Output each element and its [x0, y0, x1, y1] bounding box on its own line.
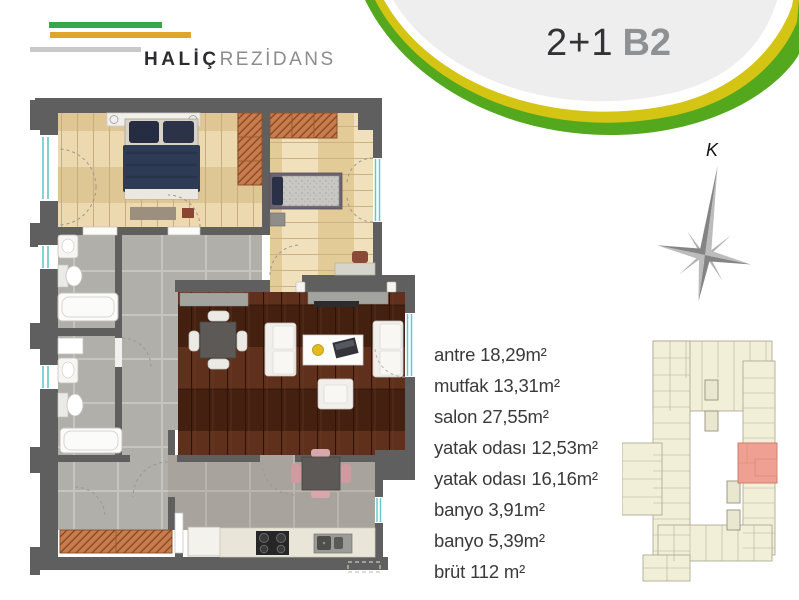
- sink-2: [58, 358, 78, 383]
- list-item: mutfak13,31m²: [434, 375, 598, 406]
- room-name: antre: [434, 344, 475, 365]
- compass-rose-icon: [648, 150, 768, 310]
- unit-block-label: B2: [622, 22, 671, 64]
- list-item: salon27,55m²: [434, 406, 598, 437]
- desk-chair: [352, 251, 368, 263]
- room-name: brüt: [434, 561, 465, 582]
- bathtub-2: [60, 428, 122, 453]
- armchair: [318, 379, 353, 409]
- logo-bar-green: [49, 22, 162, 28]
- compass-north-label: K: [706, 140, 718, 161]
- stove: [256, 531, 289, 555]
- room-area-list: antre18,29m² mutfak13,31m² salon27,55m² …: [434, 344, 598, 592]
- bed-bench: [130, 207, 176, 220]
- fridge: [188, 527, 220, 556]
- list-item: brüt112 m²: [434, 561, 598, 592]
- desk: [335, 263, 375, 275]
- highlighted-unit: [738, 443, 777, 483]
- tv: [314, 301, 359, 307]
- wardrobe-bedroom-2: [270, 113, 337, 138]
- brand-name-secondary: REZİDANS: [220, 49, 336, 70]
- room-name: yatak odası: [434, 437, 526, 458]
- list-item: antre18,29m²: [434, 344, 598, 375]
- sink-1: [58, 235, 78, 258]
- list-item: banyo5,39m²: [434, 530, 598, 561]
- single-bed: [270, 173, 342, 209]
- building-key-plan: [622, 333, 792, 585]
- sofa: [265, 323, 296, 376]
- unit-layout-label: 2+1: [546, 22, 613, 64]
- kitchen-sink: [314, 534, 352, 553]
- wardrobe-entry: [60, 530, 172, 553]
- logo-bar-gray: [30, 47, 141, 52]
- bedroom-1-window: [38, 135, 58, 201]
- brochure-page: { "brand": { "title_bold": "HALİÇ", "tit…: [0, 0, 799, 600]
- room-area: 16,16m²: [531, 468, 597, 489]
- list-item: yatak odası16,16m²: [434, 468, 598, 499]
- double-bed: [123, 119, 200, 199]
- bathroom-2-threshold: [115, 338, 122, 367]
- washer-niche: [58, 338, 83, 354]
- unit-title: 2+1B2: [546, 22, 671, 65]
- room-name: mutfak: [434, 375, 488, 396]
- toilet-1: [58, 265, 82, 287]
- logo-bar-orange: [50, 32, 191, 38]
- speaker-left: [296, 282, 305, 292]
- kitchen-door: [175, 513, 183, 553]
- compass-star: [650, 159, 764, 308]
- toilet-2: [58, 393, 83, 417]
- room-area: 5,39m²: [488, 530, 544, 551]
- room-name: banyo: [434, 530, 483, 551]
- room-area: 12,53m²: [531, 437, 597, 458]
- entry-floor: [58, 462, 175, 530]
- ensuite-door: [83, 227, 117, 235]
- bathroom-2-window: [38, 365, 58, 389]
- room-area: 27,55m²: [482, 406, 548, 427]
- room-area: 13,31m²: [493, 375, 559, 396]
- kitchen-window: [375, 497, 383, 523]
- room-area: 112 m²: [470, 561, 525, 582]
- bathroom-1-window: [38, 245, 58, 269]
- room-name: salon: [434, 406, 477, 427]
- brand-logo: HALİÇREZİDANS: [144, 50, 336, 70]
- sideboard: [180, 293, 248, 306]
- sofa-2: [373, 321, 403, 377]
- list-item: yatak odası12,53m²: [434, 437, 598, 468]
- speaker-right: [387, 282, 396, 292]
- room-name: banyo: [434, 499, 483, 520]
- bowl: [313, 345, 324, 356]
- living-room-window: [405, 313, 415, 377]
- room-area: 18,29m²: [480, 344, 546, 365]
- room-area: 3,91m²: [488, 499, 544, 520]
- list-item: banyo3,91m²: [434, 499, 598, 530]
- apartment-floor-plan: [30, 95, 420, 575]
- nightstand: [270, 213, 285, 226]
- room-name: yatak odası: [434, 468, 526, 489]
- brand-name-primary: HALİÇ: [144, 49, 220, 70]
- slippers: [182, 208, 194, 218]
- coffee-table: [303, 335, 363, 365]
- bedroom-2-window: [373, 158, 383, 222]
- wardrobe-bedroom-1: [238, 113, 262, 185]
- bedroom-1-door: [168, 227, 200, 235]
